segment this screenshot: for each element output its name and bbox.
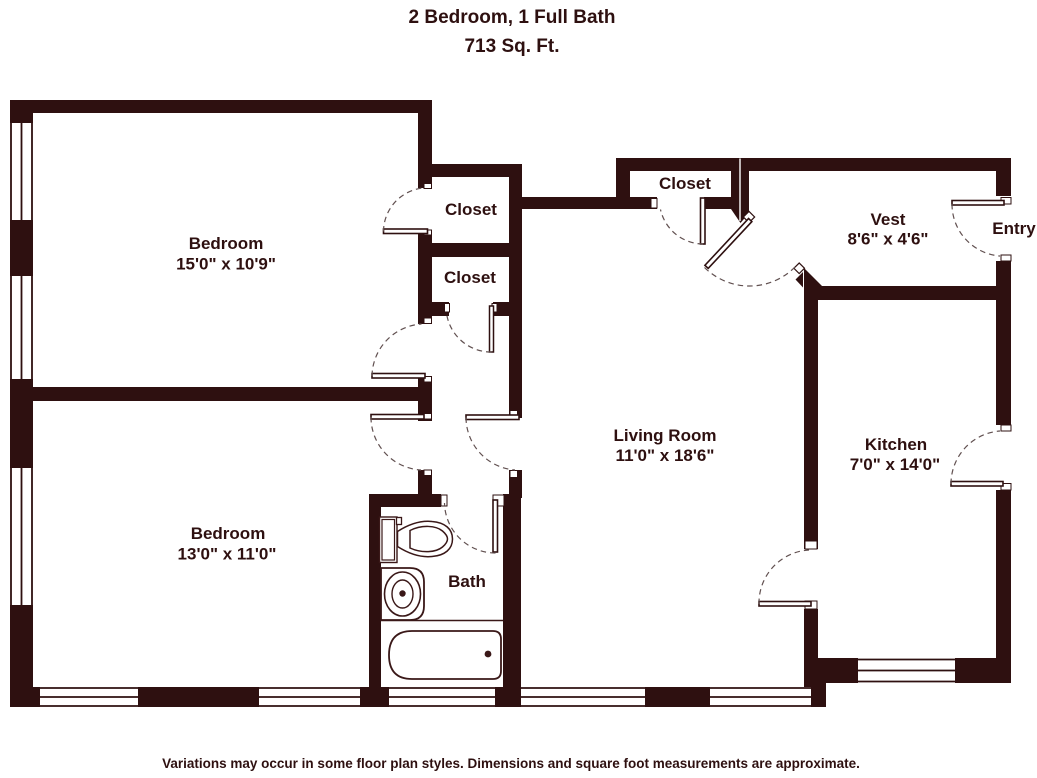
svg-text:Closet: Closet bbox=[445, 200, 497, 219]
svg-text:2 Bedroom, 1 Full Bath: 2 Bedroom, 1 Full Bath bbox=[409, 7, 616, 28]
svg-text:Bedroom: Bedroom bbox=[189, 234, 264, 253]
svg-text:Variations may occur in some f: Variations may occur in some floor plan … bbox=[162, 756, 860, 771]
svg-text:Closet: Closet bbox=[659, 174, 711, 193]
svg-text:15'0" x 10'9": 15'0" x 10'9" bbox=[176, 255, 276, 274]
svg-text:13'0" x 11'0": 13'0" x 11'0" bbox=[178, 545, 277, 564]
svg-text:Closet: Closet bbox=[444, 268, 496, 287]
svg-text:Living Room: Living Room bbox=[614, 426, 717, 445]
svg-text:Vest: Vest bbox=[871, 210, 906, 229]
svg-text:Bath: Bath bbox=[448, 572, 486, 591]
svg-text:Entry: Entry bbox=[992, 219, 1036, 238]
svg-text:713 Sq. Ft.: 713 Sq. Ft. bbox=[464, 36, 559, 57]
svg-text:Bedroom: Bedroom bbox=[191, 524, 266, 543]
svg-text:7'0" x 14'0": 7'0" x 14'0" bbox=[850, 455, 940, 474]
svg-text:Kitchen: Kitchen bbox=[865, 435, 927, 454]
svg-text:8'6" x 4'6": 8'6" x 4'6" bbox=[848, 230, 929, 249]
svg-text:11'0" x 18'6": 11'0" x 18'6" bbox=[616, 446, 715, 465]
